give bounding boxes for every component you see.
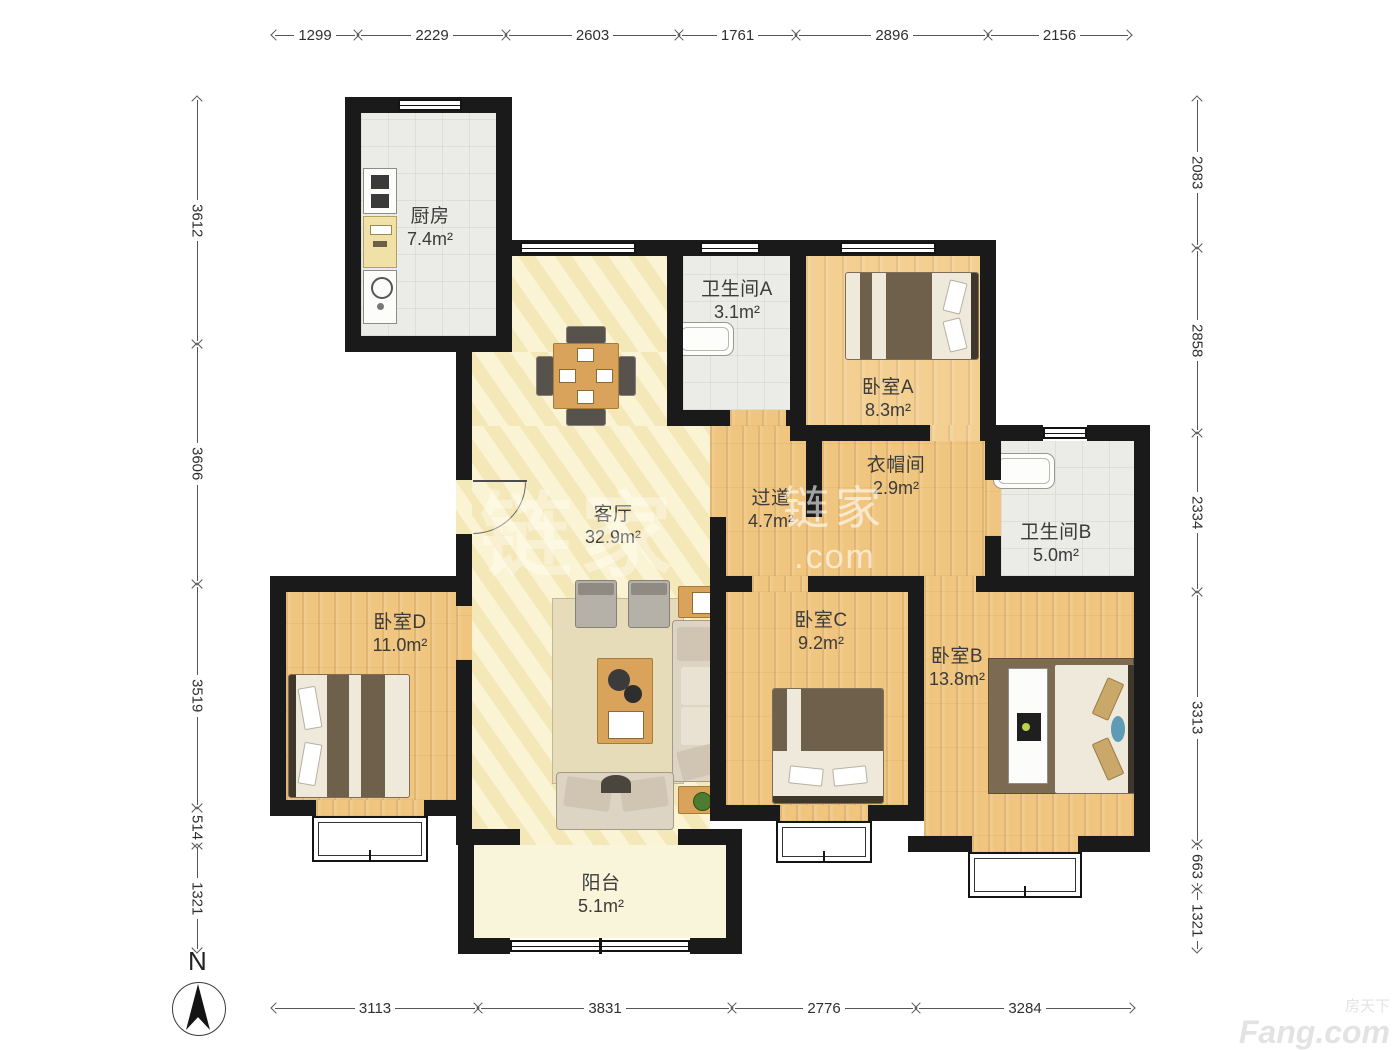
wall-segment bbox=[496, 97, 512, 352]
room-name: 卫生间A bbox=[701, 279, 773, 300]
room-label-bath-b: 卫生间B 5.0m² bbox=[1001, 521, 1111, 567]
room-area: 11.0m² bbox=[345, 634, 455, 657]
room-name: 厨房 bbox=[410, 206, 449, 227]
wall-segment bbox=[980, 240, 996, 425]
bedroom-a-bed bbox=[845, 272, 979, 360]
room-label-kitchen: 厨房 7.4m² bbox=[375, 205, 485, 251]
dimension-label: 3606 bbox=[189, 443, 206, 484]
wall-segment bbox=[710, 805, 780, 821]
bedroom-c-bay-gap bbox=[780, 805, 868, 821]
room-area: 8.3m² bbox=[833, 399, 943, 422]
watermark-lianjia: 链家 .com bbox=[760, 472, 910, 577]
dimension-label: 3831 bbox=[584, 1000, 625, 1017]
wall-segment bbox=[270, 576, 286, 816]
wall-segment bbox=[690, 938, 742, 954]
wall-segment bbox=[723, 576, 752, 592]
wall-segment bbox=[456, 352, 472, 480]
room-name: 卧室C bbox=[794, 610, 847, 631]
wall-segment bbox=[667, 240, 683, 426]
dim-top-2: 2229 bbox=[358, 27, 506, 43]
dim-top-3: 2603 bbox=[506, 27, 679, 43]
dim-left-5: 1321 bbox=[189, 845, 205, 952]
dim-right-1: 2083 bbox=[1189, 97, 1205, 248]
dimension-label: 2229 bbox=[411, 27, 452, 44]
wall-segment bbox=[458, 938, 510, 954]
bedroom-b-bed bbox=[1054, 664, 1136, 794]
dimension-label: 1761 bbox=[717, 27, 758, 44]
bedroom-c-door-gap bbox=[752, 576, 808, 592]
wall-segment bbox=[985, 536, 1001, 576]
dim-top-1: 1299 bbox=[272, 27, 358, 43]
dimension-label: 2603 bbox=[572, 27, 613, 44]
wall-segment bbox=[790, 425, 930, 441]
bath-b-tub bbox=[993, 453, 1055, 489]
dim-top-6: 2156 bbox=[988, 27, 1131, 43]
bedroom-a-door-gap bbox=[930, 425, 980, 441]
coffee-table bbox=[597, 658, 653, 744]
wall-segment bbox=[345, 97, 361, 352]
room-label-balcony: 阳台 5.1m² bbox=[546, 872, 656, 918]
compass-north-label: N bbox=[188, 946, 207, 977]
wall-segment bbox=[908, 836, 972, 852]
bedroom-b-bay-gap bbox=[972, 836, 1078, 852]
bedroom-b-dresser bbox=[1008, 668, 1048, 784]
watermark-lianjia-large: 链家 bbox=[480, 462, 680, 595]
bay-mullion bbox=[369, 850, 371, 862]
dim-right-4: 3313 bbox=[1189, 592, 1205, 844]
bath-a-tub bbox=[676, 322, 734, 356]
bay-mullion bbox=[823, 851, 825, 863]
room-label-bath-a: 卫生间A 3.1m² bbox=[682, 278, 792, 324]
room-area: 5.0m² bbox=[1001, 544, 1111, 567]
watermark-fang-en: Fang.com bbox=[1239, 1014, 1390, 1050]
dimension-label: 3113 bbox=[355, 1000, 395, 1017]
bay-mullion bbox=[1024, 886, 1026, 898]
watermark-fang: 房天下 Fang.com bbox=[1239, 999, 1390, 1048]
bedroom-d-bay-gap bbox=[316, 800, 424, 816]
dimension-label: 2156 bbox=[1039, 27, 1080, 44]
bedroom-c-bed bbox=[772, 688, 884, 804]
wall-segment bbox=[1134, 425, 1150, 852]
room-area: 7.4m² bbox=[375, 228, 485, 251]
floor-plan-page: 厨房 7.4m² 卫生间A 3.1m² 卧室A 8.3m² 衣帽间 2.9m² … bbox=[0, 0, 1400, 1050]
dim-right-6: 1321 bbox=[1189, 889, 1205, 952]
dim-top-5: 2896 bbox=[796, 27, 988, 43]
room-label-bedroom-d: 卧室D 11.0m² bbox=[345, 611, 455, 657]
wall-segment bbox=[1078, 836, 1150, 852]
dimension-label: 2334 bbox=[1189, 492, 1206, 533]
dimension-label: 1321 bbox=[1189, 900, 1206, 941]
entry-door-gap bbox=[456, 480, 472, 534]
dim-bottom-2: 3831 bbox=[478, 1000, 732, 1016]
dim-bottom-3: 2776 bbox=[732, 1000, 916, 1016]
bedroom-a-window bbox=[840, 242, 936, 254]
dim-bottom-4: 3284 bbox=[916, 1000, 1134, 1016]
dimension-label: 2776 bbox=[803, 1000, 844, 1017]
dim-right-5: 663 bbox=[1189, 844, 1205, 889]
dim-left-1: 3612 bbox=[189, 97, 205, 344]
wall-segment bbox=[908, 576, 924, 821]
room-area: 13.8m² bbox=[902, 668, 1012, 691]
dim-left-3: 3519 bbox=[189, 584, 205, 808]
dimension-label: 2858 bbox=[1189, 320, 1206, 361]
wall-segment bbox=[270, 800, 316, 816]
bedroom-d-door-gap bbox=[456, 606, 472, 660]
bath-b-window bbox=[1043, 427, 1087, 439]
kitchen-window bbox=[398, 99, 462, 111]
wall-segment bbox=[790, 256, 806, 426]
wall-segment bbox=[456, 576, 472, 606]
room-area: 5.1m² bbox=[546, 895, 656, 918]
watermark-lianjia-cn: 链家 bbox=[760, 472, 910, 538]
wall-segment bbox=[980, 425, 1043, 441]
room-name: 卧室B bbox=[931, 646, 983, 667]
wall-segment bbox=[667, 410, 730, 426]
dim-left-4: 514 bbox=[189, 808, 205, 845]
dimension-label: 3612 bbox=[189, 200, 206, 241]
wall-segment bbox=[985, 441, 1001, 480]
dimension-label: 3313 bbox=[1189, 697, 1206, 738]
dimension-label: 1299 bbox=[294, 27, 335, 44]
wall-segment bbox=[456, 660, 472, 845]
room-label-bedroom-a: 卧室A 8.3m² bbox=[833, 376, 943, 422]
dimension-label: 3284 bbox=[1004, 1000, 1045, 1017]
room-label-bedroom-c: 卧室C 9.2m² bbox=[766, 609, 876, 655]
dimension-label: 1321 bbox=[189, 878, 206, 919]
wall-segment bbox=[345, 336, 512, 352]
dimension-label: 2896 bbox=[871, 27, 912, 44]
watermark-lianjia-com: .com bbox=[760, 538, 910, 577]
wall-segment bbox=[726, 829, 742, 954]
bath-a-door-gap bbox=[730, 410, 786, 426]
room-area: 3.1m² bbox=[682, 301, 792, 324]
dim-right-3: 2334 bbox=[1189, 433, 1205, 592]
bath-a-window bbox=[700, 242, 760, 254]
dim-left-2: 3606 bbox=[189, 344, 205, 584]
living-north-window bbox=[520, 242, 636, 254]
bedroom-b-door-gap bbox=[924, 576, 976, 592]
room-name: 卧室A bbox=[862, 377, 914, 398]
wall-segment bbox=[270, 576, 472, 592]
wall-segment bbox=[458, 829, 474, 954]
dim-right-2: 2858 bbox=[1189, 248, 1205, 433]
dimension-label: 2083 bbox=[1189, 152, 1206, 193]
watermark-fang-cn: 房天下 bbox=[1239, 999, 1390, 1014]
dimension-label: 663 bbox=[1189, 850, 1206, 883]
room-name: 卫生间B bbox=[1020, 522, 1092, 543]
dimension-label: 3519 bbox=[189, 675, 206, 716]
room-name: 阳台 bbox=[581, 873, 620, 894]
room-name: 卧室D bbox=[373, 612, 426, 633]
bedroom-d-bed bbox=[288, 674, 410, 798]
wall-segment bbox=[710, 517, 726, 821]
living-balcony-opening bbox=[520, 829, 678, 845]
room-label-bedroom-b: 卧室B 13.8m² bbox=[902, 645, 1012, 691]
kitchen-sink bbox=[363, 270, 397, 324]
dim-bottom-1: 3113 bbox=[272, 1000, 478, 1016]
balcony-window-mullion bbox=[599, 938, 602, 954]
dim-top-4: 1761 bbox=[679, 27, 796, 43]
room-area: 9.2m² bbox=[766, 632, 876, 655]
dining-set bbox=[530, 320, 640, 430]
wall-segment bbox=[976, 576, 1150, 592]
wall-segment bbox=[808, 576, 920, 592]
wall-segment bbox=[868, 805, 924, 821]
loveseat-sofa bbox=[556, 772, 674, 830]
